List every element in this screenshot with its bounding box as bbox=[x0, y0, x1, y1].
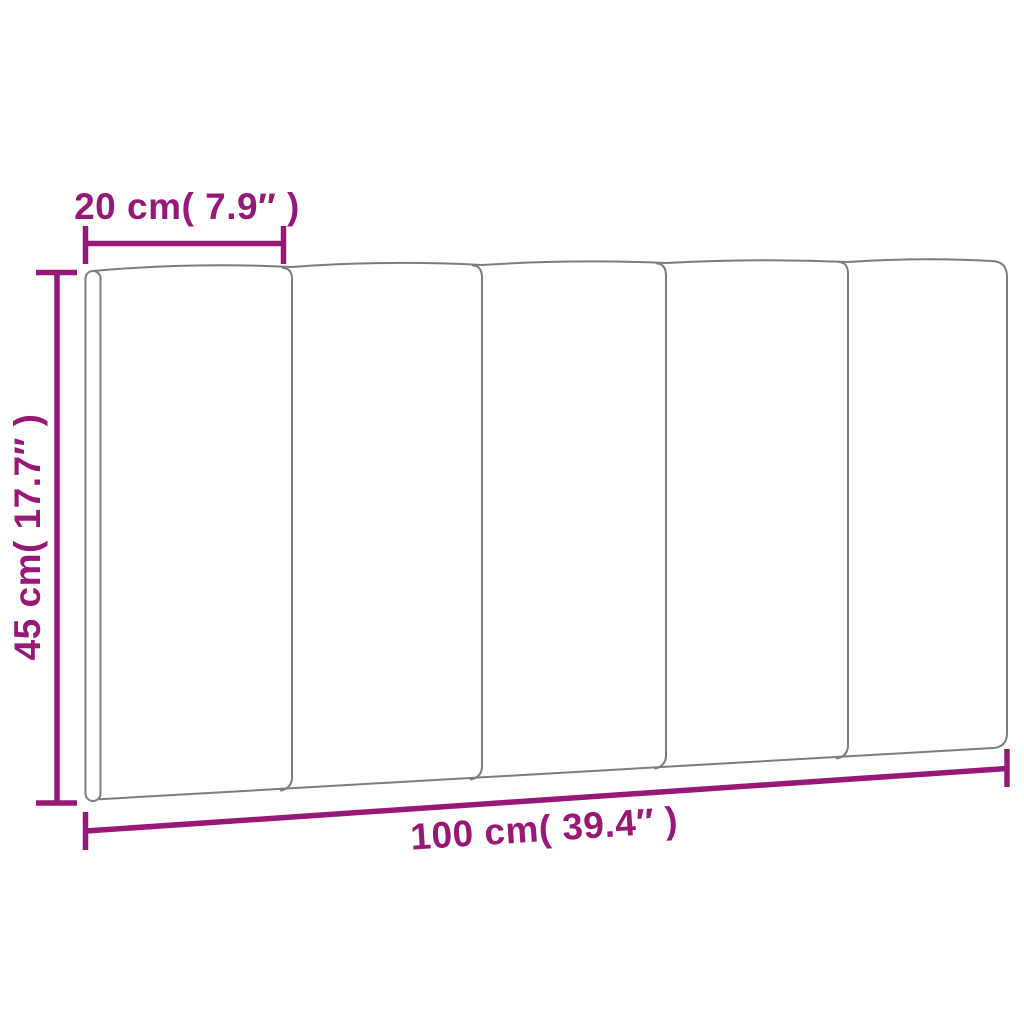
top-width-dimension: 20 cm( 7.9″ ) bbox=[74, 186, 300, 264]
diagram-canvas: 20 cm( 7.9″ ) 45 cm( 17.7″ ) 100 cm( 39.… bbox=[0, 0, 1024, 1024]
headboard-left-edge bbox=[86, 271, 101, 801]
left-height-dimension: 45 cm( 17.7″ ) bbox=[7, 273, 77, 804]
headboard-outline bbox=[86, 259, 1008, 801]
top-width-label: 20 cm( 7.9″ ) bbox=[74, 186, 300, 227]
headboard-dimension-diagram: 20 cm( 7.9″ ) 45 cm( 17.7″ ) 100 cm( 39.… bbox=[0, 0, 1024, 1024]
headboard-body bbox=[90, 259, 1007, 799]
top-width-dimension-line bbox=[86, 226, 284, 264]
left-height-label: 45 cm( 17.7″ ) bbox=[7, 414, 48, 661]
